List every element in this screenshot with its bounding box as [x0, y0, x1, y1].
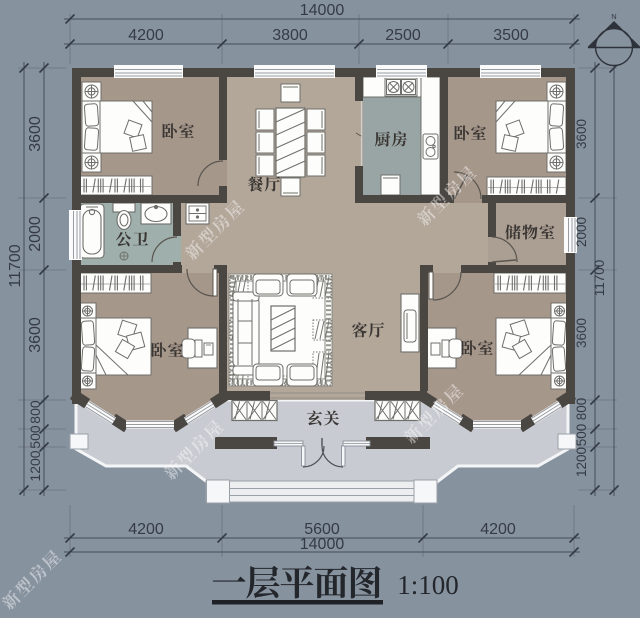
svg-text:3600: 3600	[574, 119, 589, 149]
svg-text:800: 800	[27, 400, 43, 424]
svg-text:11700: 11700	[592, 260, 607, 297]
svg-text:1:100: 1:100	[397, 570, 459, 600]
svg-text:4200: 4200	[128, 521, 164, 538]
svg-text:3600: 3600	[574, 318, 589, 348]
svg-text:2000: 2000	[27, 216, 44, 252]
svg-text:3600: 3600	[27, 116, 44, 152]
svg-text:3600: 3600	[27, 317, 44, 353]
svg-text:1200: 1200	[574, 447, 589, 477]
svg-text:N: N	[611, 12, 616, 21]
svg-text:1200: 1200	[27, 450, 43, 481]
svg-text:2500: 2500	[385, 27, 421, 44]
svg-text:14000: 14000	[300, 2, 345, 19]
svg-text:4200: 4200	[480, 521, 516, 538]
svg-text:3500: 3500	[493, 27, 529, 44]
svg-text:14000: 14000	[300, 536, 345, 553]
svg-text:500: 500	[27, 425, 43, 449]
svg-text:3800: 3800	[272, 27, 308, 44]
svg-text:4200: 4200	[128, 27, 164, 44]
svg-text:800: 800	[574, 398, 589, 421]
svg-text:11700: 11700	[7, 244, 24, 287]
svg-text:500: 500	[574, 424, 589, 447]
svg-text:2000: 2000	[574, 217, 589, 247]
